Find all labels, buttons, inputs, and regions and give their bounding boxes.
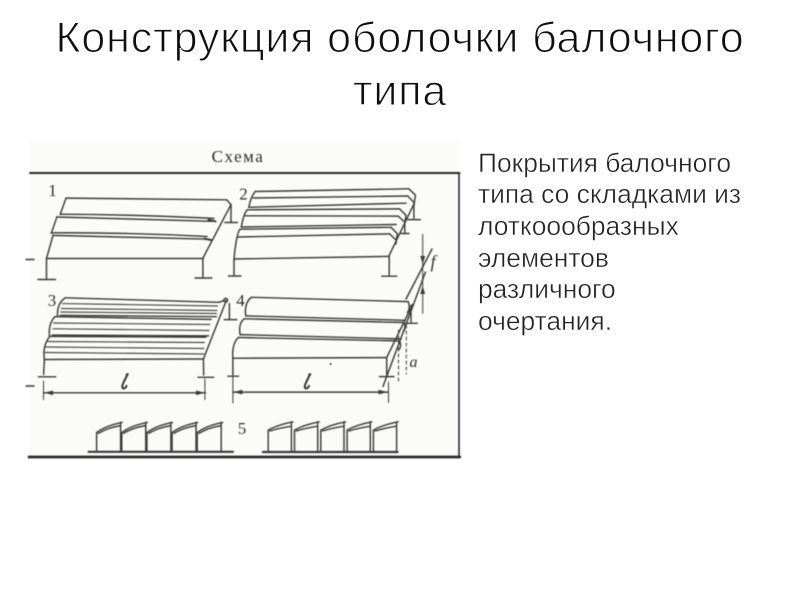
svg-text:1: 1 <box>48 181 57 200</box>
svg-text:3: 3 <box>48 291 57 310</box>
svg-text:4: 4 <box>236 291 245 310</box>
svg-text:Схема: Схема <box>212 147 265 166</box>
svg-text:5: 5 <box>238 419 247 438</box>
svg-text:a: a <box>410 354 418 371</box>
svg-text:2: 2 <box>239 185 248 204</box>
